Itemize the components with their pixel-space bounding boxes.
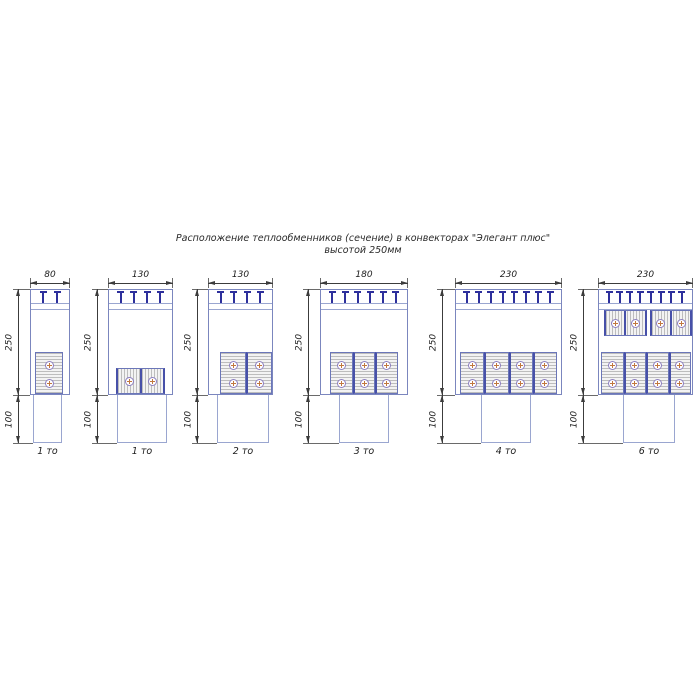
grille-line — [321, 309, 407, 310]
tube-circle — [382, 361, 391, 370]
dim-arrow — [195, 395, 199, 402]
tube-cross-icon — [610, 383, 615, 384]
base-duct — [623, 395, 675, 443]
tube-circle — [540, 361, 549, 370]
tube-circle — [608, 379, 617, 388]
mounting-bracket-icon — [230, 291, 237, 293]
mounting-bracket-icon — [144, 291, 151, 293]
dim-arrow — [320, 281, 327, 285]
extension-line — [13, 443, 33, 444]
extension-line — [437, 289, 455, 290]
tube-cross-icon — [127, 381, 132, 382]
tube-circle — [382, 379, 391, 388]
grille-line — [321, 303, 407, 304]
tube-circle — [611, 319, 620, 328]
mounting-bracket-icon — [244, 291, 251, 293]
extension-line — [437, 443, 481, 444]
tube-cross-icon — [259, 381, 260, 386]
height-dim-line — [583, 289, 584, 443]
mounting-bracket-icon — [606, 291, 613, 293]
convector-body — [455, 289, 562, 395]
dim-arrow — [440, 436, 444, 443]
dim-arrow — [440, 395, 444, 402]
convector-diagram-3: 1302501002 то — [0, 0, 700, 700]
dim-arrow — [195, 436, 199, 443]
dim-arrow — [30, 281, 37, 285]
extension-line — [561, 278, 562, 288]
convector-body — [320, 289, 408, 395]
dim-arrow — [306, 388, 310, 395]
mounting-bracket-icon — [342, 291, 349, 293]
heat-exchanger — [330, 352, 353, 394]
convector-diagram-4: 1802501003 то — [0, 0, 700, 700]
mounting-bracket-icon — [117, 291, 124, 293]
extension-line — [13, 289, 30, 290]
tube-cross-icon — [364, 381, 365, 386]
mounting-bracket-icon — [329, 291, 336, 293]
dim-arrow — [166, 281, 173, 285]
tube-circle — [148, 377, 157, 386]
heat-exchanger — [375, 352, 398, 394]
tube-circle — [255, 361, 264, 370]
extension-line — [172, 278, 173, 288]
dim-arrow — [581, 436, 585, 443]
dim-arrow — [401, 281, 408, 285]
mounting-bracket-icon — [626, 291, 633, 293]
tube-cross-icon — [257, 365, 262, 366]
heat-exchanger — [116, 368, 165, 394]
extension-line — [192, 395, 208, 396]
tube-circle — [631, 319, 640, 328]
tube-circle — [337, 379, 346, 388]
diagram-caption: 1 то — [112, 446, 172, 457]
tube-circle — [492, 379, 501, 388]
heat-exchanger — [604, 310, 647, 336]
tube-cross-icon — [655, 383, 660, 384]
dim-arrow — [686, 281, 693, 285]
dim-arrow — [16, 436, 20, 443]
diagram-caption: 2 то — [213, 446, 273, 457]
tube-cross-icon — [47, 365, 52, 366]
mounting-bracket-icon — [392, 291, 399, 293]
tube-cross-icon — [496, 363, 497, 368]
dim-arrow — [16, 388, 20, 395]
mounting-bracket-icon — [647, 291, 654, 293]
heat-exchanger — [624, 352, 647, 394]
tube-cross-icon — [681, 321, 682, 326]
height-dim-line — [308, 289, 309, 443]
tube-circle — [675, 379, 684, 388]
tube-cross-icon — [364, 363, 365, 368]
tube-cross-icon — [633, 323, 638, 324]
tube-cross-icon — [472, 363, 473, 368]
heat-exchanger — [353, 352, 376, 394]
height-dim-line — [442, 289, 443, 443]
tube-cross-icon — [470, 365, 475, 366]
tube-circle — [653, 361, 662, 370]
extension-line — [69, 278, 70, 288]
diagram-caption: 1 то — [18, 446, 78, 457]
base-duct — [339, 395, 389, 443]
height-dim-line — [97, 289, 98, 443]
tube-cross-icon — [233, 381, 234, 386]
convector-diagram-2: 1302501001 то — [0, 0, 700, 700]
tube-cross-icon — [231, 365, 236, 366]
tube-cross-icon — [544, 381, 545, 386]
heat-exchanger — [669, 352, 692, 394]
tube-cross-icon — [386, 363, 387, 368]
tube-cross-icon — [612, 363, 613, 368]
tube-circle — [492, 361, 501, 370]
lower-height-dim-label: 100 — [429, 400, 440, 440]
tube-circle — [653, 379, 662, 388]
mounting-bracket-icon — [157, 291, 164, 293]
dim-arrow — [306, 395, 310, 402]
tube-cross-icon — [362, 383, 367, 384]
dim-arrow — [95, 289, 99, 296]
dim-arrow — [440, 289, 444, 296]
grille-line — [599, 309, 692, 310]
convector-body — [108, 289, 173, 395]
tube-circle — [45, 379, 54, 388]
tube-cross-icon — [386, 381, 387, 386]
diagram-caption: 6 то — [619, 446, 679, 457]
tube-cross-icon — [542, 365, 547, 366]
tube-cross-icon — [496, 381, 497, 386]
mounting-bracket-icon — [463, 291, 470, 293]
heat-exchanger — [646, 352, 669, 394]
tube-cross-icon — [259, 363, 260, 368]
mounting-bracket-icon — [380, 291, 387, 293]
heat-exchanger-divider — [624, 311, 626, 335]
mounting-bracket-icon — [511, 291, 518, 293]
heat-exchanger-divider — [670, 311, 672, 335]
extension-line — [208, 278, 209, 288]
width-dim-line — [30, 283, 70, 284]
tube-cross-icon — [679, 381, 680, 386]
extension-line — [303, 443, 339, 444]
grille-line — [31, 303, 69, 304]
tube-circle — [229, 379, 238, 388]
width-dim-line — [455, 283, 562, 284]
diagram-caption: 3 то — [334, 446, 394, 457]
mounting-bracket-icon — [499, 291, 506, 293]
heat-exchanger — [246, 352, 272, 394]
tube-cross-icon — [152, 379, 153, 384]
tube-cross-icon — [470, 383, 475, 384]
dim-arrow — [208, 281, 215, 285]
dim-arrow — [455, 281, 462, 285]
extension-line — [320, 278, 321, 288]
convector-diagram-5: 2302501004 то — [0, 0, 700, 700]
extension-line — [92, 443, 117, 444]
dim-arrow — [555, 281, 562, 285]
tube-cross-icon — [233, 363, 234, 368]
diagrams-layer: 802501001 то1302501001 то1302501002 то18… — [0, 0, 700, 700]
width-dim-label: 180 — [320, 270, 408, 281]
mounting-bracket-icon — [658, 291, 665, 293]
tube-cross-icon — [520, 363, 521, 368]
width-dim-line — [598, 283, 693, 284]
tube-cross-icon — [542, 383, 547, 384]
dim-arrow — [581, 388, 585, 395]
tube-cross-icon — [677, 365, 682, 366]
base-duct — [33, 395, 62, 443]
lower-height-dim-label: 100 — [295, 400, 306, 440]
mounting-bracket-icon — [354, 291, 361, 293]
base-duct — [217, 395, 269, 443]
height-dim-line — [18, 289, 19, 443]
mounting-bracket-icon — [535, 291, 542, 293]
tube-circle — [255, 379, 264, 388]
tube-cross-icon — [610, 365, 615, 366]
tube-circle — [516, 361, 525, 370]
extension-line — [30, 278, 31, 288]
tube-circle — [125, 377, 134, 386]
extension-line — [437, 395, 455, 396]
upper-height-dim-label: 250 — [295, 323, 306, 363]
dim-arrow — [95, 436, 99, 443]
extension-line — [578, 289, 598, 290]
tube-cross-icon — [339, 365, 344, 366]
base-duct — [117, 395, 167, 443]
heat-exchanger — [460, 352, 484, 394]
tube-cross-icon — [657, 363, 658, 368]
tube-cross-icon — [632, 383, 637, 384]
grille-line — [456, 309, 561, 310]
upper-height-dim-label: 250 — [570, 323, 581, 363]
heat-exchanger-divider — [140, 369, 142, 393]
upper-height-dim-label: 250 — [5, 323, 16, 363]
dim-arrow — [95, 388, 99, 395]
heat-exchanger — [35, 352, 63, 394]
dim-arrow — [266, 281, 273, 285]
dim-arrow — [16, 289, 20, 296]
mounting-bracket-icon — [487, 291, 494, 293]
tube-cross-icon — [494, 365, 499, 366]
tube-cross-icon — [47, 383, 52, 384]
tube-cross-icon — [339, 383, 344, 384]
extension-line — [192, 289, 208, 290]
width-dim-line — [320, 283, 408, 284]
height-dim-line — [197, 289, 198, 443]
tube-cross-icon — [615, 321, 616, 326]
dim-arrow — [16, 395, 20, 402]
base-duct — [481, 395, 531, 443]
tube-circle — [337, 361, 346, 370]
tube-circle — [656, 319, 665, 328]
tube-cross-icon — [657, 381, 658, 386]
tube-circle — [45, 361, 54, 370]
convector-diagram-1: 802501001 то — [0, 0, 700, 700]
mounting-bracket-icon — [130, 291, 137, 293]
tube-circle — [468, 379, 477, 388]
mounting-bracket-icon — [668, 291, 675, 293]
mounting-bracket-icon — [637, 291, 644, 293]
tube-circle — [540, 379, 549, 388]
tube-cross-icon — [129, 379, 130, 384]
tube-cross-icon — [677, 383, 682, 384]
width-dim-line — [108, 283, 173, 284]
tube-cross-icon — [231, 383, 236, 384]
width-dim-label: 130 — [208, 270, 273, 281]
heat-exchanger — [650, 310, 693, 336]
dim-arrow — [63, 281, 70, 285]
dim-arrow — [195, 289, 199, 296]
extension-line — [13, 395, 30, 396]
width-dim-label: 80 — [30, 270, 70, 281]
tube-circle — [630, 361, 639, 370]
mounting-bracket-icon — [367, 291, 374, 293]
heat-exchanger — [220, 352, 246, 394]
lower-height-dim-label: 100 — [84, 400, 95, 440]
tube-cross-icon — [613, 323, 618, 324]
mounting-bracket-icon — [475, 291, 482, 293]
tube-cross-icon — [341, 381, 342, 386]
tube-cross-icon — [257, 383, 262, 384]
heat-exchanger — [601, 352, 624, 394]
grille-line — [109, 309, 172, 310]
mounting-bracket-icon — [40, 291, 47, 293]
extension-line — [108, 278, 109, 288]
dim-arrow — [598, 281, 605, 285]
mounting-bracket-icon — [547, 291, 554, 293]
diagram-caption: 4 то — [476, 446, 536, 457]
tube-cross-icon — [612, 381, 613, 386]
grille-line — [209, 309, 272, 310]
mounting-bracket-icon — [678, 291, 685, 293]
extension-line — [578, 395, 598, 396]
grille-line — [209, 303, 272, 304]
tube-circle — [360, 361, 369, 370]
tube-circle — [675, 361, 684, 370]
width-dim-label: 130 — [108, 270, 173, 281]
dim-arrow — [581, 289, 585, 296]
tube-cross-icon — [384, 383, 389, 384]
tube-circle — [608, 361, 617, 370]
dim-arrow — [108, 281, 115, 285]
tube-cross-icon — [679, 363, 680, 368]
heat-exchanger — [484, 352, 508, 394]
convector-body — [30, 289, 70, 395]
extension-line — [272, 278, 273, 288]
tube-circle — [677, 319, 686, 328]
extension-line — [303, 289, 320, 290]
drawing-canvas: Расположение теплообменников (сечение) в… — [0, 0, 700, 700]
tube-circle — [229, 361, 238, 370]
tube-cross-icon — [520, 381, 521, 386]
convector-body — [208, 289, 273, 395]
tube-cross-icon — [679, 323, 684, 324]
grille-line — [109, 303, 172, 304]
grille-line — [31, 309, 69, 310]
tube-cross-icon — [518, 365, 523, 366]
dim-arrow — [306, 436, 310, 443]
mounting-bracket-icon — [523, 291, 530, 293]
tube-cross-icon — [341, 363, 342, 368]
dim-arrow — [195, 388, 199, 395]
tube-cross-icon — [635, 321, 636, 326]
tube-cross-icon — [660, 321, 661, 326]
grille-line — [456, 303, 561, 304]
extension-line — [598, 278, 599, 288]
extension-line — [455, 278, 456, 288]
lower-height-dim-label: 100 — [570, 400, 581, 440]
lower-height-dim-label: 100 — [5, 400, 16, 440]
upper-height-dim-label: 250 — [84, 323, 95, 363]
extension-line — [407, 278, 408, 288]
tube-cross-icon — [544, 363, 545, 368]
tube-cross-icon — [634, 381, 635, 386]
tube-circle — [360, 379, 369, 388]
tube-cross-icon — [655, 365, 660, 366]
tube-cross-icon — [362, 365, 367, 366]
extension-line — [692, 278, 693, 288]
mounting-bracket-icon — [217, 291, 224, 293]
upper-height-dim-label: 250 — [184, 323, 195, 363]
tube-cross-icon — [518, 383, 523, 384]
width-dim-label: 230 — [598, 270, 693, 281]
tube-cross-icon — [472, 381, 473, 386]
mounting-bracket-icon — [54, 291, 61, 293]
dim-arrow — [306, 289, 310, 296]
heat-exchanger — [533, 352, 557, 394]
width-dim-line — [208, 283, 273, 284]
tube-circle — [468, 361, 477, 370]
extension-line — [192, 443, 217, 444]
upper-height-dim-label: 250 — [429, 323, 440, 363]
dim-arrow — [581, 395, 585, 402]
tube-cross-icon — [49, 381, 50, 386]
dim-arrow — [440, 388, 444, 395]
tube-cross-icon — [494, 383, 499, 384]
tube-cross-icon — [632, 365, 637, 366]
convector-body — [598, 289, 693, 395]
extension-line — [92, 289, 108, 290]
tube-circle — [630, 379, 639, 388]
heat-exchanger — [509, 352, 533, 394]
width-dim-label: 230 — [455, 270, 562, 281]
tube-cross-icon — [384, 365, 389, 366]
convector-diagram-6: 2302501006 то — [0, 0, 700, 700]
extension-line — [303, 395, 320, 396]
lower-height-dim-label: 100 — [184, 400, 195, 440]
extension-line — [92, 395, 108, 396]
tube-cross-icon — [658, 323, 663, 324]
extension-line — [578, 443, 623, 444]
grille-line — [599, 303, 692, 304]
mounting-bracket-icon — [616, 291, 623, 293]
tube-cross-icon — [150, 381, 155, 382]
tube-cross-icon — [634, 363, 635, 368]
mounting-bracket-icon — [257, 291, 264, 293]
dim-arrow — [95, 395, 99, 402]
tube-cross-icon — [49, 363, 50, 368]
tube-circle — [516, 379, 525, 388]
